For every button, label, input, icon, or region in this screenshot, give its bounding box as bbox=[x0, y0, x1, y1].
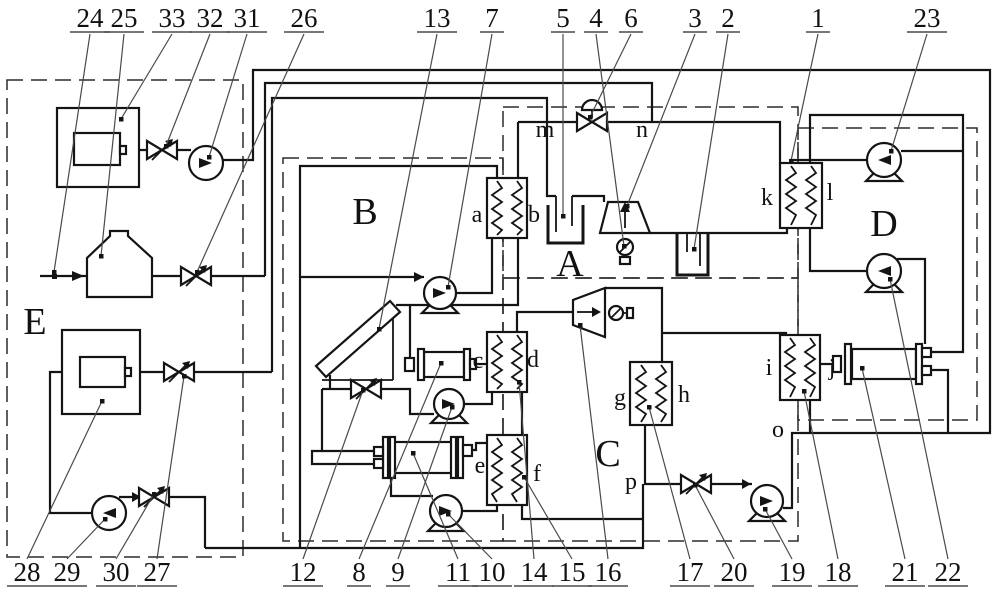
heat-exchanger-kl bbox=[780, 163, 822, 228]
leader-line-9 bbox=[398, 407, 452, 559]
flow-arrow bbox=[414, 272, 424, 282]
pump-storage-icon bbox=[431, 389, 467, 423]
ref-label-29: 29 bbox=[54, 557, 81, 587]
ref-dot-9 bbox=[450, 405, 455, 410]
ref-dot-6 bbox=[588, 115, 593, 120]
leader-line-31 bbox=[209, 34, 247, 157]
leader-line-1 bbox=[791, 34, 818, 161]
ref-dot-32 bbox=[164, 144, 169, 149]
ref-dot-4 bbox=[622, 244, 627, 249]
zone-letter-C: C bbox=[595, 433, 620, 475]
ref-label-17: 17 bbox=[677, 557, 704, 587]
ref-dot-15 bbox=[522, 475, 527, 480]
ref-label-6: 6 bbox=[624, 3, 638, 33]
leader-line-7 bbox=[448, 34, 492, 287]
ref-label-4: 4 bbox=[589, 3, 603, 33]
leader-line-28 bbox=[27, 401, 102, 559]
d-cylinder-21 bbox=[833, 344, 931, 384]
ref-dot-7 bbox=[446, 285, 451, 290]
pipe-dcyl-stub2 bbox=[932, 370, 948, 433]
ref-label-15: 15 bbox=[559, 557, 586, 587]
ref-label-26: 26 bbox=[291, 3, 318, 33]
node-letter-h: h bbox=[678, 382, 690, 408]
furnace-icon bbox=[87, 231, 152, 297]
ref-dot-5 bbox=[561, 214, 566, 219]
ref-label-1: 1 bbox=[811, 3, 825, 33]
pipe-g-to-p bbox=[645, 425, 752, 484]
system-schematic: 2425333231261375463212328293027128911101… bbox=[0, 0, 1000, 594]
zone-letter-B: B bbox=[352, 191, 377, 233]
ref-dot-3 bbox=[625, 204, 630, 209]
heat-user-unit-top bbox=[57, 108, 139, 187]
node-letter-b: b bbox=[528, 202, 540, 228]
zone-letter-E: E bbox=[23, 301, 46, 343]
leader-line-18 bbox=[804, 391, 838, 559]
ref-dot-20 bbox=[693, 483, 698, 488]
ref-dot-29 bbox=[103, 517, 108, 522]
junction-dot bbox=[52, 274, 57, 279]
node-letter-k: k bbox=[761, 185, 773, 211]
valve-26-icon bbox=[181, 265, 211, 286]
ref-dot-17 bbox=[647, 405, 652, 410]
valve-12-icon bbox=[351, 378, 381, 399]
leader-line-20 bbox=[695, 485, 734, 559]
pipe-return-drain bbox=[205, 484, 643, 548]
node-letter-l: l bbox=[827, 180, 834, 206]
ref-label-19: 19 bbox=[779, 557, 806, 587]
ref-label-10: 10 bbox=[479, 557, 506, 587]
leader-line-33 bbox=[121, 34, 172, 119]
heat-exchanger-ab bbox=[487, 178, 527, 238]
ref-dot-18 bbox=[802, 389, 807, 394]
heat-user-inner-box bbox=[80, 357, 125, 387]
ref-label-13: 13 bbox=[424, 3, 451, 33]
node-letter-c: c bbox=[473, 348, 484, 374]
ref-dot-30 bbox=[152, 492, 157, 497]
ref-dot-19 bbox=[763, 507, 768, 512]
flash-tank-2 bbox=[677, 233, 708, 275]
flash-tank-5 bbox=[548, 196, 583, 243]
leader-line-23 bbox=[891, 34, 927, 151]
ref-dot-11 bbox=[411, 451, 416, 456]
zone-letter-A: A bbox=[556, 243, 584, 285]
ref-dot-25 bbox=[99, 254, 104, 259]
ref-label-28: 28 bbox=[14, 557, 41, 587]
node-letter-j: j bbox=[828, 355, 836, 381]
pump-d-lower-icon bbox=[866, 254, 902, 292]
ref-label-7: 7 bbox=[485, 3, 499, 33]
leader-line-29 bbox=[67, 519, 105, 559]
heat-exchanger-ij bbox=[780, 335, 820, 400]
ref-label-12: 12 bbox=[290, 557, 317, 587]
ref-dot-14 bbox=[517, 380, 522, 385]
ref-label-23: 23 bbox=[914, 3, 941, 33]
ref-label-21: 21 bbox=[892, 557, 919, 587]
ref-dot-2 bbox=[692, 247, 697, 252]
ref-dot-22 bbox=[888, 277, 893, 282]
ref-dot-8 bbox=[439, 361, 444, 366]
ref-label-9: 9 bbox=[391, 557, 405, 587]
flow-arrow bbox=[72, 271, 84, 281]
flow-arrow bbox=[742, 479, 751, 489]
pump-31-icon bbox=[189, 146, 223, 180]
pump-23-icon bbox=[866, 143, 902, 181]
ref-label-3: 3 bbox=[688, 3, 702, 33]
pump-solar-icon bbox=[422, 277, 458, 313]
node-letter-o: o bbox=[772, 417, 784, 443]
valve-27-icon bbox=[164, 361, 194, 382]
ref-dot-21 bbox=[860, 366, 865, 371]
ref-label-27: 27 bbox=[144, 557, 171, 587]
pipe-m-n bbox=[518, 122, 780, 163]
big-cylinder-11 bbox=[374, 437, 472, 478]
leader-line-12 bbox=[303, 390, 363, 559]
diagram-page: 2425333231261375463212328293027128911101… bbox=[0, 0, 1000, 594]
leader-line-21 bbox=[862, 368, 905, 559]
port-stub bbox=[125, 368, 131, 376]
node-letter-a: a bbox=[472, 202, 483, 228]
node-letter-m: m bbox=[536, 117, 555, 143]
zone-letter-D: D bbox=[870, 203, 897, 245]
ref-dot-13 bbox=[377, 327, 382, 332]
ref-label-31: 31 bbox=[234, 3, 261, 33]
ref-label-14: 14 bbox=[521, 557, 549, 587]
node-letter-p: p bbox=[625, 469, 637, 495]
heat-exchanger-ef bbox=[487, 435, 527, 505]
port-stub bbox=[120, 146, 126, 154]
node-letter-d: d bbox=[527, 347, 539, 373]
solar-collector-icon bbox=[316, 301, 400, 380]
leader-line-32 bbox=[166, 34, 210, 146]
ref-label-22: 22 bbox=[935, 557, 962, 587]
ref-dot-31 bbox=[207, 155, 212, 160]
ref-dot-12 bbox=[361, 388, 366, 393]
ref-label-11: 11 bbox=[445, 557, 471, 587]
turbine-icon bbox=[573, 288, 633, 337]
ref-dot-23 bbox=[889, 149, 894, 154]
node-letter-n: n bbox=[636, 117, 648, 143]
pipe-dlower-loop bbox=[810, 228, 925, 344]
ref-label-30: 30 bbox=[103, 557, 130, 587]
node-letter-e: e bbox=[475, 453, 486, 479]
node-letter-g: g bbox=[614, 385, 626, 411]
leader-line-27 bbox=[157, 376, 184, 559]
pipe-cd-pump-in bbox=[464, 392, 492, 404]
ref-dot-1 bbox=[789, 159, 794, 164]
valve-32-icon bbox=[147, 139, 177, 160]
ref-label-16: 16 bbox=[595, 557, 622, 587]
ref-label-2: 2 bbox=[721, 3, 735, 33]
ref-dot-24 bbox=[52, 270, 57, 275]
pump-29-icon bbox=[92, 496, 126, 530]
ref-dot-26 bbox=[195, 270, 200, 275]
leader-line-2 bbox=[694, 34, 728, 249]
pipe-tank5-compressor bbox=[572, 196, 604, 202]
ref-dot-16 bbox=[578, 323, 583, 328]
ref-dot-27 bbox=[182, 374, 187, 379]
ref-label-24: 24 bbox=[77, 3, 105, 33]
ref-label-20: 20 bbox=[721, 557, 748, 587]
ref-dot-10 bbox=[446, 512, 451, 517]
pipe-turbine-inlet bbox=[517, 312, 573, 332]
ref-label-18: 18 bbox=[825, 557, 852, 587]
ref-dot-28 bbox=[100, 399, 105, 404]
leader-line-22 bbox=[890, 279, 948, 559]
node-letter-i: i bbox=[766, 355, 773, 381]
compressor-icon bbox=[600, 202, 650, 264]
ref-label-33: 33 bbox=[159, 3, 186, 33]
ref-label-5: 5 bbox=[556, 3, 570, 33]
ref-label-25: 25 bbox=[111, 3, 138, 33]
pipe-compressor-discharge bbox=[650, 228, 787, 233]
ref-dot-33 bbox=[119, 117, 124, 122]
pump-19-icon bbox=[749, 485, 785, 521]
ref-label-8: 8 bbox=[352, 557, 366, 587]
node-letter-f: f bbox=[533, 461, 541, 487]
leader-line-6 bbox=[590, 34, 631, 117]
pipe-turbine-exhaust bbox=[605, 288, 786, 362]
ref-label-32: 32 bbox=[197, 3, 224, 33]
